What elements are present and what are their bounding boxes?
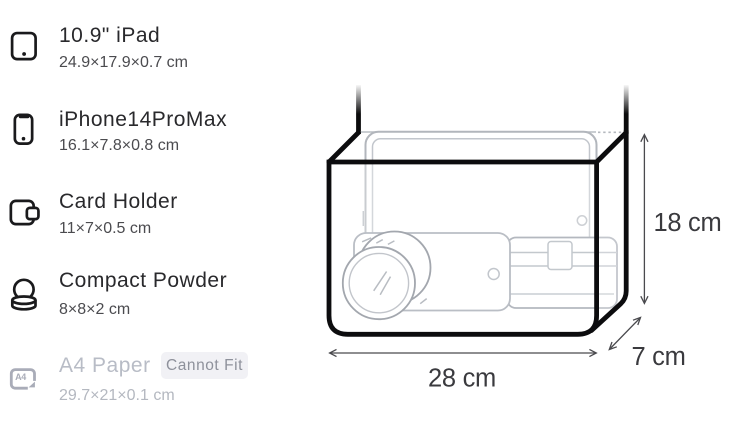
svg-text:7 cm: 7 cm [632,343,686,371]
svg-text:28 cm: 28 cm [428,365,496,393]
svg-text:18 cm: 18 cm [654,209,722,237]
